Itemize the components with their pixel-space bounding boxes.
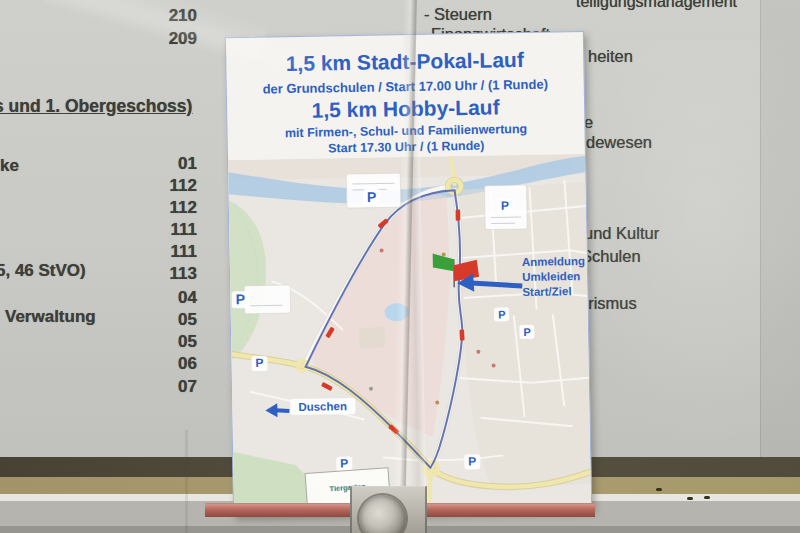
- directory-left-fragment: Verwaltung: [5, 307, 96, 327]
- registration-label-line: Anmeldung: [522, 254, 586, 270]
- clamp-screw: [359, 495, 406, 533]
- race-flyer: 1,5 km Stadt-Pokal-Lauf der Grundschulen…: [225, 31, 592, 516]
- parking-icon: P: [363, 189, 381, 207]
- room-number: 112: [135, 176, 197, 196]
- room-number: 113: [135, 264, 197, 284]
- room-number: 209: [135, 29, 197, 49]
- room-number: 05: [135, 332, 197, 352]
- room-number: 06: [135, 354, 197, 374]
- showers-label: Duschen: [290, 398, 355, 415]
- directory-sign-edge: [760, 0, 800, 460]
- glass-clamp-bracket: [350, 486, 427, 533]
- registration-label-line: Umkleiden: [522, 269, 586, 285]
- course-map: [228, 154, 591, 515]
- course-map-graphic: [228, 154, 591, 515]
- parking-icon: P: [251, 356, 267, 371]
- room-number: 05: [135, 310, 197, 330]
- room-number: 01: [135, 154, 197, 174]
- directory-heading: s und 1. Obergeschoss): [0, 96, 192, 117]
- directory-right-fragment: - Steuern: [424, 5, 492, 24]
- room-number: 112: [135, 198, 197, 218]
- parking-icon: P: [519, 325, 535, 339]
- directory-right-fragment: Schulen: [581, 247, 641, 266]
- registration-label-line: Start/Ziel: [522, 284, 586, 300]
- debris-speck: [687, 497, 693, 500]
- flyer-title-1: 1,5 km Stadt-Pokal-Lauf: [226, 47, 583, 77]
- directory-left-fragment: ke: [0, 156, 19, 176]
- room-number: 111: [135, 220, 197, 240]
- directory-right-fragment: dewesen: [586, 133, 652, 152]
- room-number: 07: [135, 377, 197, 397]
- directory-right-fragment: und Kultur: [584, 224, 659, 243]
- room-number: 111: [135, 242, 197, 262]
- parking-icon: P: [497, 199, 513, 214]
- parking-icon: P: [464, 454, 480, 469]
- room-number: 04: [135, 288, 197, 308]
- flyer-title-2: 1,5 km Hobby-Lauf: [227, 94, 584, 124]
- registration-label: Anmeldung Umkleiden Start/Ziel: [522, 254, 586, 300]
- directory-right-fragment: heiten: [588, 47, 633, 66]
- debris-speck: [656, 488, 662, 491]
- room-number: 211: [135, 0, 197, 4]
- directory-right-fragment: teiligungsmanagement: [576, 0, 737, 11]
- notice-board-photo: s und 1. Obergeschoss) ke 5, 46 StVO) Ve…: [0, 0, 800, 533]
- parking-icon: P: [232, 291, 250, 309]
- parking-icon: P: [494, 307, 510, 321]
- room-number: 210: [135, 6, 197, 26]
- debris-speck: [704, 496, 710, 499]
- directory-left-fragment: 5, 46 StVO): [0, 261, 86, 281]
